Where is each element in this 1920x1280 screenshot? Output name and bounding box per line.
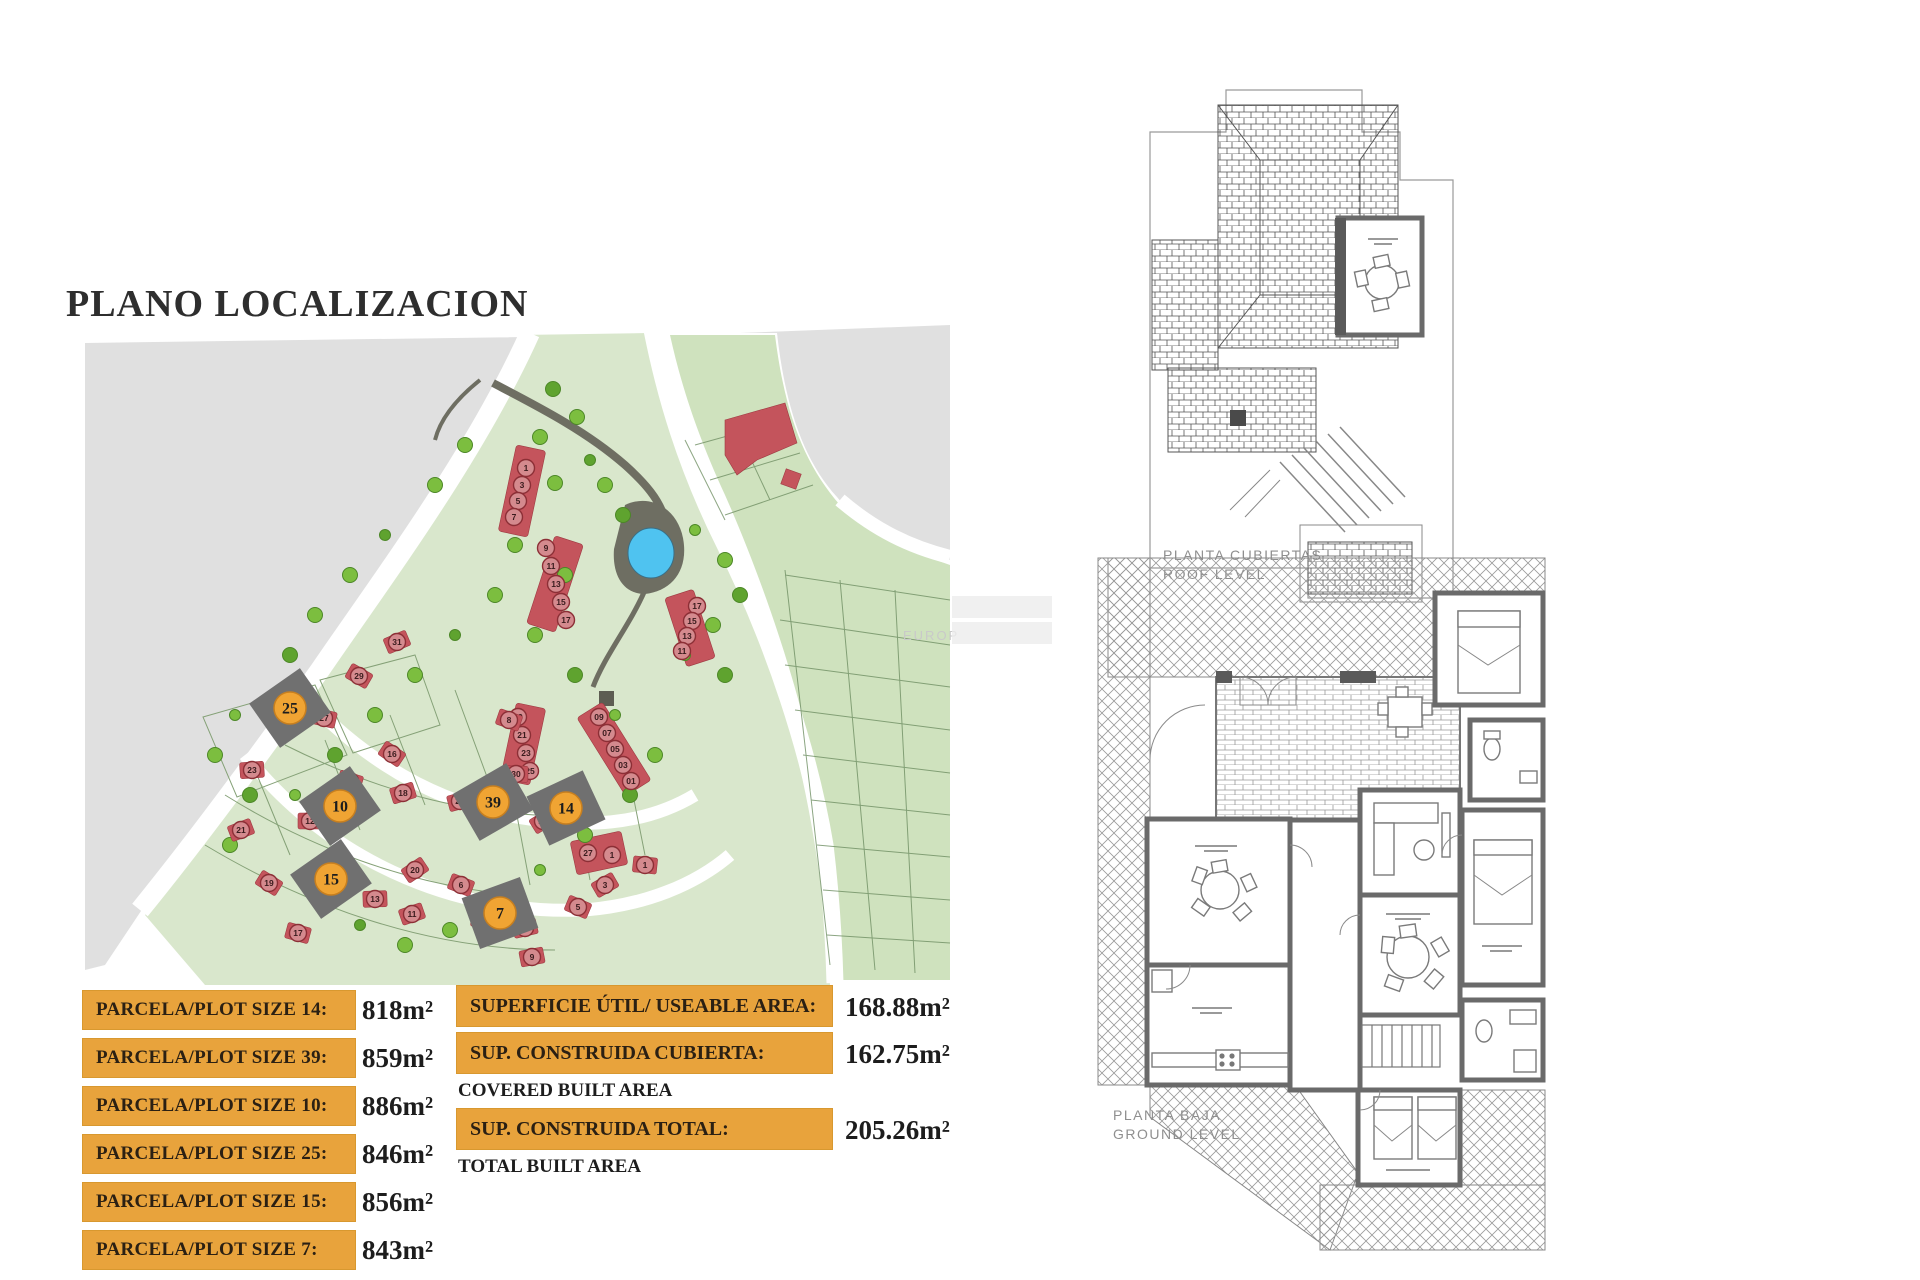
- area-row-value: 205.26m²: [845, 1115, 950, 1146]
- tree-icon: [535, 865, 546, 876]
- house-number: 11: [678, 646, 687, 656]
- tree-icon: [508, 538, 523, 553]
- area-row-label: SUP. CONSTRUIDA TOTAL:: [456, 1108, 833, 1150]
- tree-icon: [706, 618, 721, 633]
- plot-row-label: PARCELA/PLOT SIZE 39:: [82, 1038, 356, 1078]
- house-marker: 17: [558, 612, 575, 629]
- house-number: 07: [602, 728, 612, 738]
- plot-row-label: PARCELA/PLOT SIZE 25:: [82, 1134, 356, 1174]
- roof-plan: [1130, 70, 1460, 605]
- plot-row-label: PARCELA/PLOT SIZE 14:: [82, 990, 356, 1030]
- house-number: 9: [544, 543, 549, 553]
- house-marker: 11: [674, 643, 691, 660]
- house-number: 13: [370, 894, 380, 904]
- tree-icon: [733, 588, 748, 603]
- house-number: 21: [236, 825, 246, 835]
- house-marker: 23: [239, 761, 264, 779]
- tree-icon: [528, 628, 543, 643]
- house-number: 15: [687, 616, 697, 626]
- house-number: 5: [516, 496, 521, 506]
- house-number: 27: [583, 848, 593, 858]
- ground-plan: [1090, 545, 1545, 1255]
- house-number: 6: [459, 880, 464, 890]
- house-number: 23: [247, 765, 257, 775]
- tree-icon: [610, 710, 621, 721]
- room-hall: [1290, 820, 1360, 1090]
- tree-icon: [548, 476, 563, 491]
- house-marker: 9: [538, 540, 555, 557]
- tree-icon: [488, 588, 503, 603]
- plot-number: 15: [323, 872, 339, 889]
- house-marker: 7: [506, 509, 523, 526]
- tree-icon: [230, 710, 241, 721]
- house-number: 8: [507, 715, 512, 725]
- house-number: 1: [643, 860, 648, 870]
- house-number: 5: [576, 902, 581, 912]
- tree-icon: [398, 938, 413, 953]
- house-number: 21: [517, 730, 527, 740]
- watermark: EUROP: [903, 628, 959, 643]
- house-number: 09: [594, 712, 604, 722]
- house-number: 31: [392, 637, 402, 647]
- page-title: PLANO LOCALIZACION: [66, 282, 528, 326]
- house-number: 05: [610, 744, 620, 754]
- chimney: [1230, 410, 1246, 426]
- house-marker: 1: [518, 460, 535, 477]
- roof-terrace-room: [1335, 218, 1422, 335]
- house-number: 15: [556, 597, 566, 607]
- house-marker: 1: [604, 847, 621, 864]
- area-row-sublabel: TOTAL BUILT AREA: [458, 1156, 641, 1178]
- house-marker: 3: [514, 477, 531, 494]
- house-number: 13: [682, 631, 692, 641]
- tree-icon: [380, 530, 391, 541]
- house-number: 23: [521, 748, 531, 758]
- tree-icon: [308, 608, 323, 623]
- house-marker: 11: [543, 558, 560, 575]
- house-number: 13: [551, 579, 561, 589]
- house-number: 18: [398, 788, 408, 798]
- tree-icon: [570, 410, 585, 425]
- house-number: 16: [387, 749, 397, 759]
- house-number: 1: [524, 463, 529, 473]
- house-number: 7: [512, 512, 517, 522]
- area-row-value: 168.88m²: [845, 992, 950, 1023]
- house-number: 9: [530, 952, 535, 962]
- plot-row-label: PARCELA/PLOT SIZE 7:: [82, 1230, 356, 1270]
- tree-icon: [690, 525, 701, 536]
- tree-icon: [546, 382, 561, 397]
- plot-number: 7: [496, 906, 504, 923]
- tree-icon: [616, 508, 631, 523]
- plot-number: 10: [332, 799, 348, 816]
- house-number: 17: [561, 615, 571, 625]
- plot-row-label: PARCELA/PLOT SIZE 10:: [82, 1086, 356, 1126]
- tree-icon: [648, 748, 663, 763]
- site-map: 1357911131517171513111921232509070503012…: [85, 325, 950, 985]
- plot-row-value: 856m²: [362, 1182, 512, 1222]
- plot-row-label: PARCELA/PLOT SIZE 15:: [82, 1182, 356, 1222]
- tree-icon: [368, 708, 383, 723]
- ground-plan-caption: PLANTA BAJA GROUND LEVEL: [1113, 1106, 1241, 1144]
- roof-tiles: [1152, 105, 1412, 594]
- house-number: 01: [626, 776, 636, 786]
- house-number: 3: [520, 480, 525, 490]
- tree-icon: [458, 438, 473, 453]
- ground-caption-line1: PLANTA BAJA: [1113, 1106, 1241, 1125]
- house-number: 17: [293, 928, 303, 938]
- house-marker: 13: [363, 891, 388, 908]
- tree-icon: [243, 788, 258, 803]
- tree-icon: [328, 748, 343, 763]
- pond: [628, 528, 674, 578]
- area-row-value: 162.75m²: [845, 1039, 950, 1070]
- house-marker: 09: [591, 709, 608, 726]
- house-number: 29: [354, 671, 364, 681]
- house-marker: 01: [623, 773, 640, 790]
- house-marker: 05: [607, 741, 624, 758]
- house-number: 3: [603, 880, 608, 890]
- house-number: 11: [408, 909, 417, 919]
- house-marker: 15: [553, 594, 570, 611]
- house-marker: 1: [632, 856, 658, 874]
- plot-number: 14: [558, 801, 574, 818]
- house-number: 19: [264, 878, 274, 888]
- tree-icon: [290, 790, 301, 801]
- tree-icon: [533, 430, 548, 445]
- house-marker: 23: [518, 745, 535, 762]
- tree-icon: [718, 553, 733, 568]
- tree-icon: [343, 568, 358, 583]
- tree-icon: [443, 923, 458, 938]
- tree-icon: [355, 920, 366, 931]
- tree-icon: [718, 668, 733, 683]
- tree-icon: [450, 630, 461, 641]
- area-row-label: SUP. CONSTRUIDA CUBIERTA:: [456, 1032, 833, 1074]
- tree-icon: [585, 455, 596, 466]
- house-marker: 27: [580, 845, 597, 862]
- tree-icon: [208, 748, 223, 763]
- room-bathroom-e: [1470, 720, 1543, 800]
- plot-row-value: 843m²: [362, 1230, 512, 1270]
- plot-number: 39: [485, 795, 501, 812]
- house-marker: 07: [599, 725, 616, 742]
- plan-sheet: { "title": "PLANO LOCALIZACION", "waterm…: [0, 0, 1920, 1280]
- tree-icon: [598, 478, 613, 493]
- ground-caption-line2: GROUND LEVEL: [1113, 1125, 1241, 1144]
- house-number: 17: [692, 601, 702, 611]
- tree-icon: [408, 668, 423, 683]
- tree-icon: [283, 648, 298, 663]
- area-row-sublabel: COVERED BUILT AREA: [458, 1080, 672, 1102]
- house-marker: 13: [548, 576, 565, 593]
- plot-number: 25: [282, 701, 298, 718]
- house-marker: 03: [615, 757, 632, 774]
- tree-icon: [568, 668, 583, 683]
- tree-icon: [428, 478, 443, 493]
- watermark-block: [952, 622, 1052, 644]
- area-row-label: SUPERFICIE ÚTIL/ USEABLE AREA:: [456, 985, 833, 1027]
- watermark-block: [952, 596, 1052, 618]
- house-number: 03: [618, 760, 628, 770]
- house-marker: 5: [510, 493, 527, 510]
- house-number: 20: [410, 865, 420, 875]
- house-number: 11: [547, 561, 556, 571]
- house-number: 1: [610, 850, 615, 860]
